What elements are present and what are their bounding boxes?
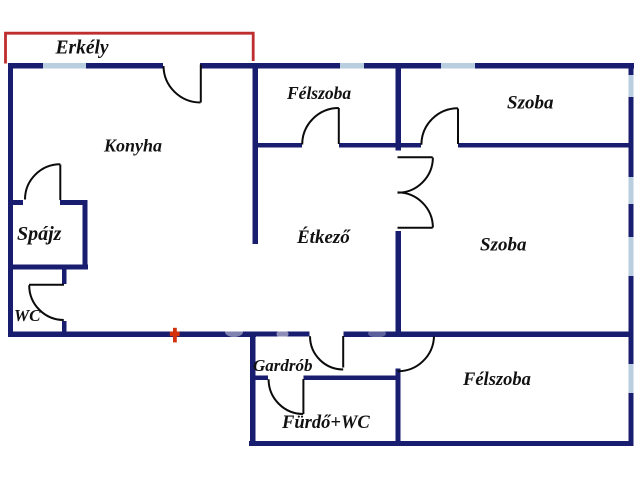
svg-text:Erkély: Erkély: [55, 38, 109, 59]
svg-text:Félszoba: Félszoba: [286, 83, 351, 103]
svg-text:Étkező: Étkező: [296, 226, 351, 248]
svg-text:Fürdő+WC: Fürdő+WC: [281, 413, 370, 433]
svg-text:WC: WC: [14, 306, 41, 325]
svg-text:Szoba: Szoba: [507, 93, 554, 114]
svg-text:Gardrób: Gardrób: [253, 356, 313, 375]
svg-text:Félszoba: Félszoba: [462, 370, 531, 390]
svg-text:Konyha: Konyha: [103, 136, 162, 156]
svg-text:Spájz: Spájz: [17, 223, 62, 245]
svg-text:Szoba: Szoba: [480, 235, 527, 256]
